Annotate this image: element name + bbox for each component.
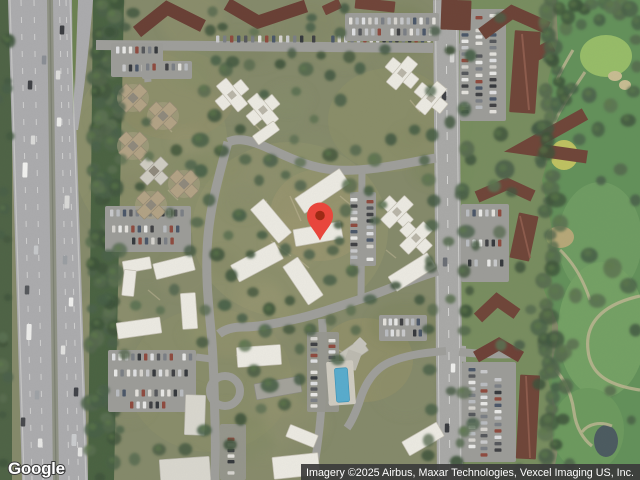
svg-text:Imagery ©2025 Airbus, Maxar Te: Imagery ©2025 Airbus, Maxar Technologies…: [306, 467, 634, 479]
svg-text:Google: Google: [8, 459, 65, 478]
